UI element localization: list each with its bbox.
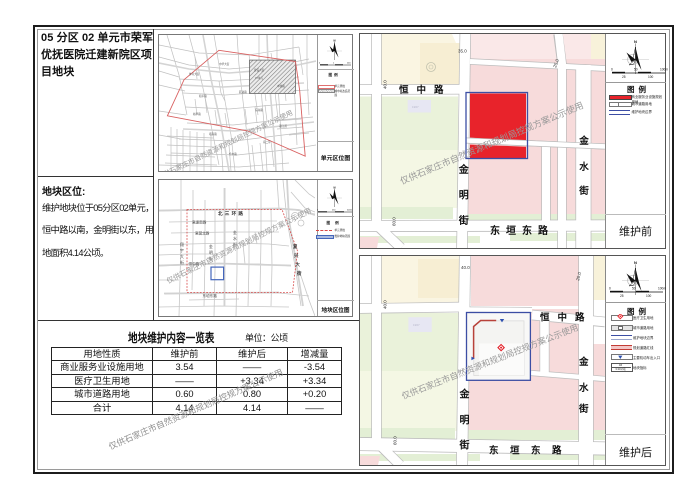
svg-text:0: 0 [317, 209, 319, 211]
svg-text:和平路: 和平路 [199, 94, 207, 98]
svg-text:100: 100 [648, 75, 654, 79]
svg-text:25: 25 [620, 294, 624, 298]
svg-text:金: 金 [209, 244, 213, 249]
svg-text:恒中路: 恒中路 [399, 84, 452, 96]
svg-text:建设大街: 建设大街 [254, 68, 265, 72]
svg-text:湘江道: 湘江道 [279, 124, 287, 128]
svg-text:35.0: 35.0 [458, 49, 467, 54]
svg-text:塔南路: 塔南路 [209, 132, 217, 136]
svg-text:2km: 2km [347, 62, 351, 64]
svg-text:60.0: 60.0 [393, 436, 398, 445]
svg-text:40.0: 40.0 [383, 80, 388, 89]
svg-text:25: 25 [622, 75, 626, 79]
svg-text:明: 明 [459, 190, 469, 202]
svg-text:0: 0 [319, 62, 321, 64]
svg-text:街: 街 [578, 403, 589, 415]
svg-text:宇: 宇 [180, 248, 184, 253]
svg-text:街: 街 [459, 439, 470, 452]
svg-text:水: 水 [579, 161, 589, 173]
svg-text:金: 金 [459, 388, 471, 401]
svg-text:金: 金 [458, 163, 470, 176]
svg-text:金: 金 [578, 356, 589, 368]
svg-text:东垣东路: 东垣东路 [489, 445, 573, 457]
svg-text:恒中路: 恒中路 [540, 312, 593, 324]
svg-text:N: N [634, 39, 637, 44]
svg-text:明: 明 [460, 415, 470, 427]
svg-text:100: 100 [646, 294, 652, 298]
svg-text:100m: 100m [658, 287, 666, 291]
svg-text:复: 复 [292, 243, 298, 250]
svg-text:水: 水 [233, 236, 237, 241]
svg-text:东岗路: 东岗路 [255, 108, 263, 112]
svg-text:0: 0 [611, 68, 613, 72]
svg-text:1967: 1967 [413, 323, 420, 327]
svg-text:07单元: 07单元 [255, 76, 263, 80]
svg-text:南二环: 南二环 [263, 140, 271, 144]
svg-text:水: 水 [579, 382, 589, 394]
svg-text:裕华路: 裕华路 [193, 112, 201, 116]
svg-text:100m: 100m [660, 68, 668, 72]
svg-text:街: 街 [458, 214, 469, 227]
svg-text:1967: 1967 [412, 105, 419, 109]
svg-text:兴: 兴 [294, 252, 299, 259]
svg-text:500m: 500m [347, 209, 352, 211]
svg-text:跃进路: 跃进路 [239, 90, 247, 94]
svg-text:1: 1 [333, 62, 335, 64]
svg-text:金: 金 [233, 230, 237, 235]
svg-text:体育大街: 体育大街 [189, 72, 200, 76]
svg-text:高营北路: 高营北路 [195, 231, 210, 236]
svg-text:0: 0 [609, 287, 611, 291]
svg-text:60.0: 60.0 [392, 217, 397, 226]
svg-text:中华大街: 中华大街 [219, 62, 230, 66]
svg-text:街: 街 [296, 270, 302, 277]
svg-text:大: 大 [180, 254, 184, 259]
svg-text:40.0: 40.0 [383, 300, 388, 309]
svg-text:东垣东路: 东垣东路 [490, 224, 554, 237]
svg-text:仓丰路: 仓丰路 [229, 152, 237, 156]
svg-text:东垣东路: 东垣东路 [203, 293, 218, 298]
svg-text:金: 金 [578, 135, 589, 147]
svg-text:250: 250 [332, 209, 336, 211]
svg-text:街: 街 [578, 185, 589, 197]
svg-text:北三环路: 北三环路 [218, 210, 245, 217]
svg-text:N: N [634, 260, 637, 265]
svg-text:街: 街 [180, 260, 184, 265]
svg-text:50: 50 [632, 287, 636, 291]
svg-text:40.0: 40.0 [461, 265, 470, 270]
svg-text:翔: 翔 [180, 242, 184, 247]
svg-text:高速南路: 高速南路 [192, 220, 207, 225]
svg-text:50: 50 [634, 68, 638, 72]
svg-text:丰收路: 丰收路 [277, 84, 285, 88]
svg-text:大: 大 [296, 261, 301, 268]
